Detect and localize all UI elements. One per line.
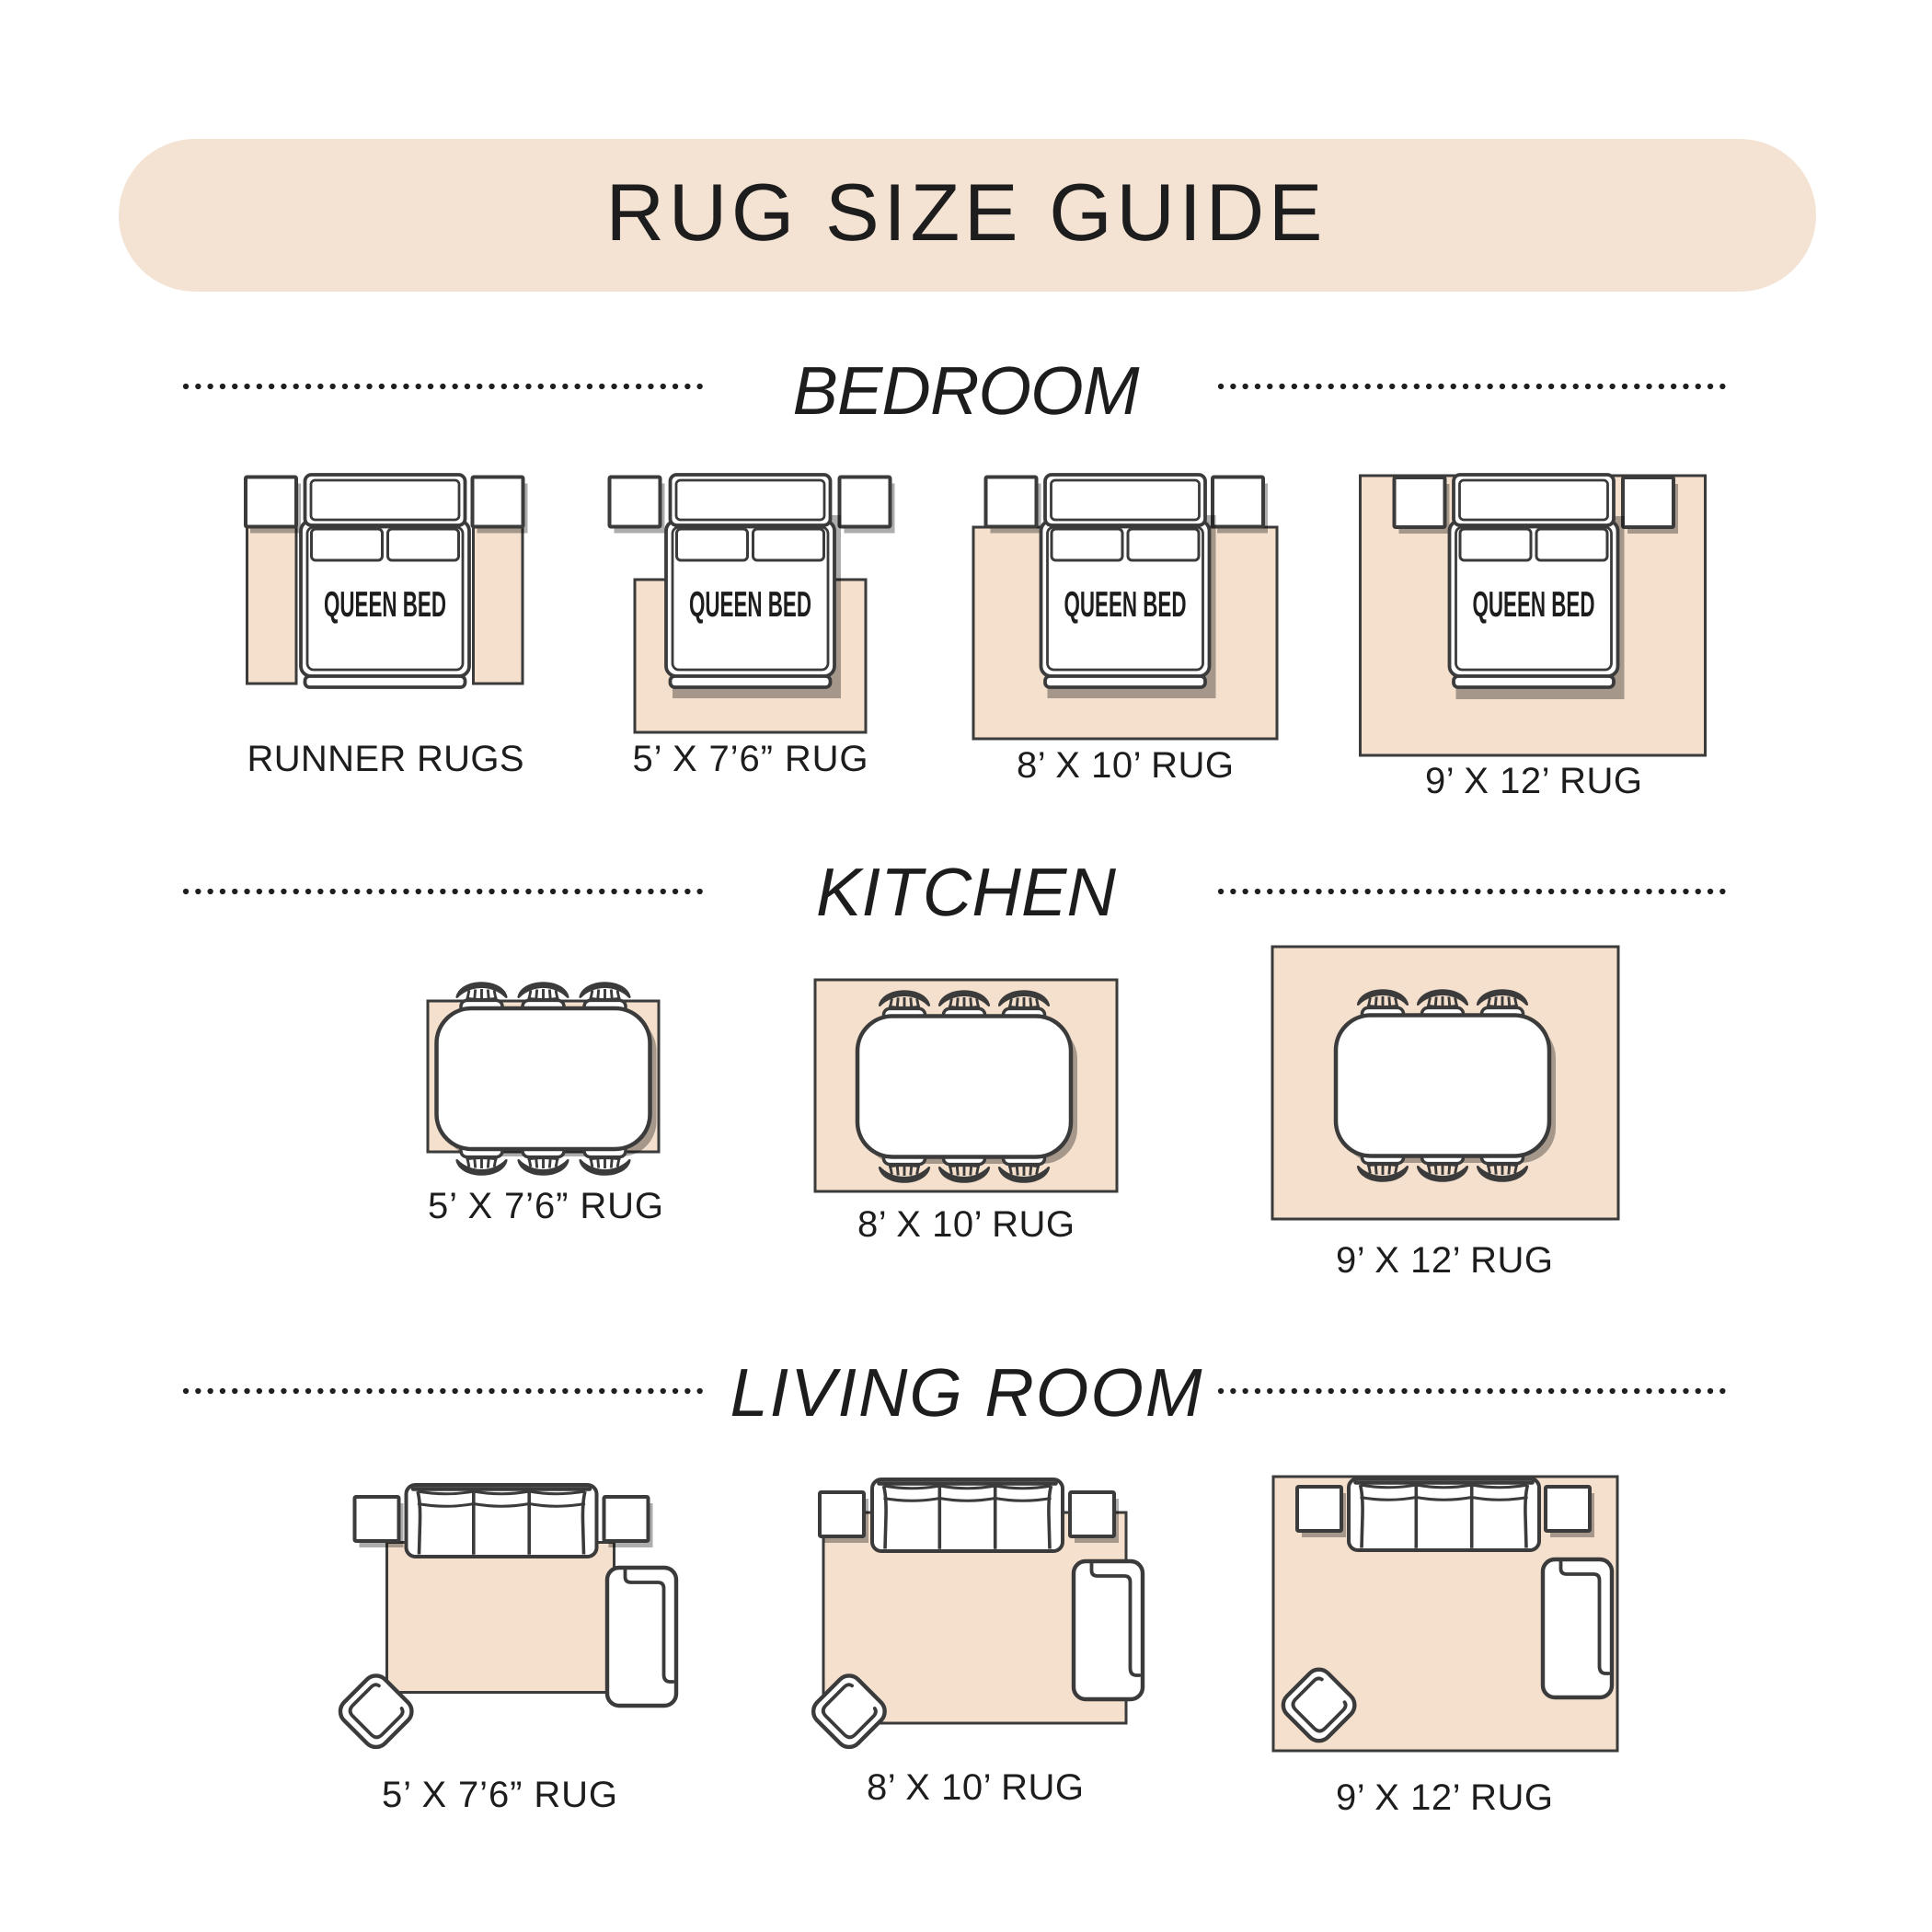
svg-text:9’ X 12’ RUG: 9’ X 12’ RUG xyxy=(1336,1777,1553,1818)
svg-text:LIVING ROOM: LIVING ROOM xyxy=(730,1354,1202,1431)
svg-text:KITCHEN: KITCHEN xyxy=(816,854,1117,930)
svg-text:8’ X 10’ RUG: 8’ X 10’ RUG xyxy=(857,1204,1075,1245)
svg-text:BEDROOM: BEDROOM xyxy=(793,352,1140,429)
svg-text:5’ X 7’6” RUG: 5’ X 7’6” RUG xyxy=(428,1186,663,1226)
svg-text:RUG SIZE GUIDE: RUG SIZE GUIDE xyxy=(606,167,1323,258)
svg-text:5’ X 7’6” RUG: 5’ X 7’6” RUG xyxy=(633,739,868,779)
svg-text:9’ X 12’ RUG: 9’ X 12’ RUG xyxy=(1336,1240,1553,1281)
svg-text:RUNNER RUGS: RUNNER RUGS xyxy=(247,739,524,779)
svg-text:8’ X 10’ RUG: 8’ X 10’ RUG xyxy=(867,1767,1084,1808)
svg-text:5’ X 7’6” RUG: 5’ X 7’6” RUG xyxy=(382,1775,617,1815)
svg-text:8’ X 10’ RUG: 8’ X 10’ RUG xyxy=(1017,745,1234,786)
svg-text:9’ X 12’ RUG: 9’ X 12’ RUG xyxy=(1425,761,1642,801)
